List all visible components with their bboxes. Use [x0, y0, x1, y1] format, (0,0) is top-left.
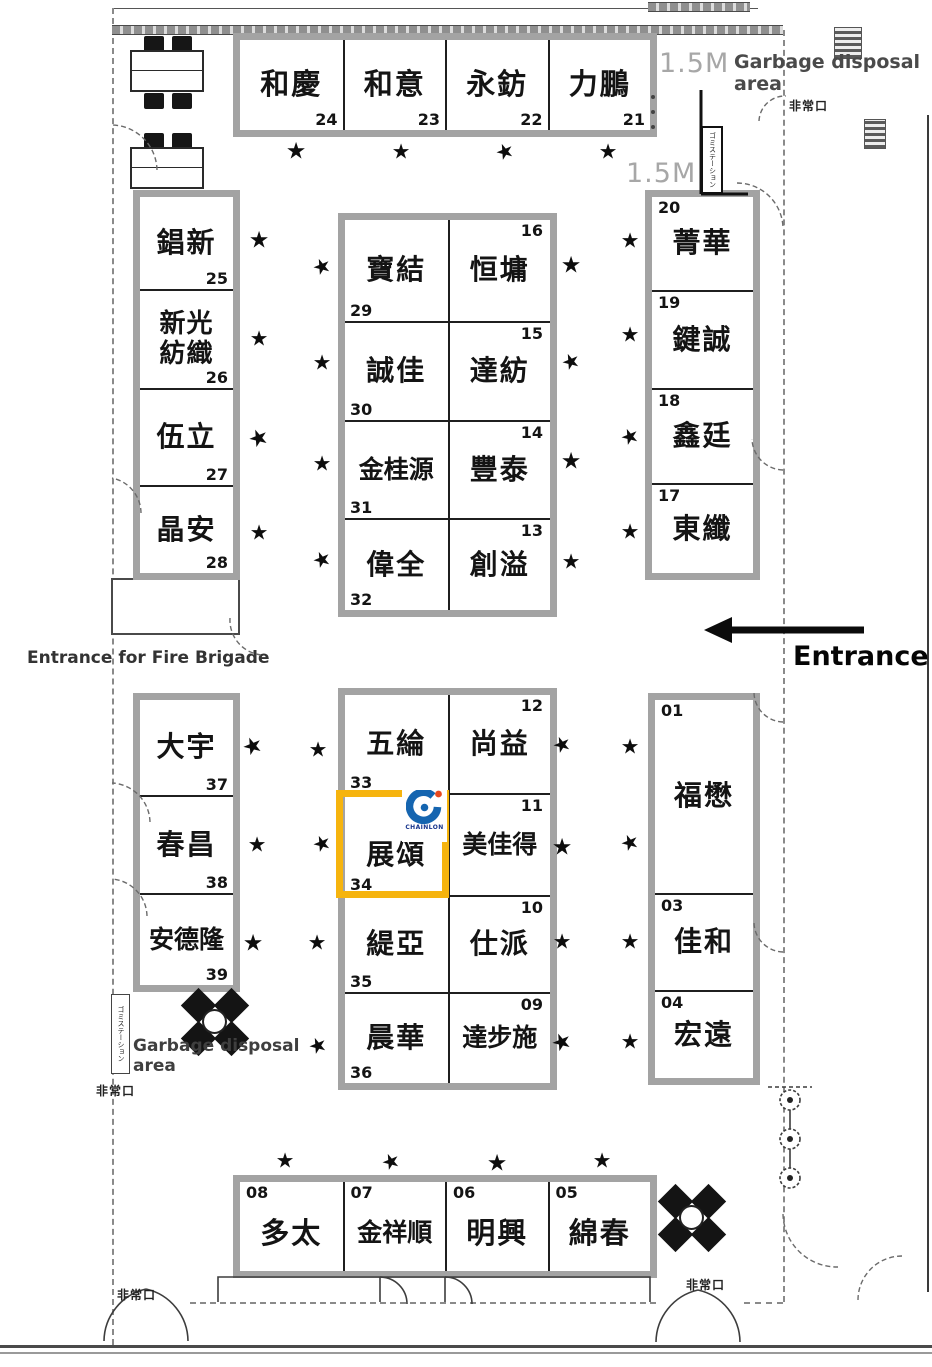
booth-name: 福懋 [674, 780, 734, 812]
bottom-wall-right [744, 1302, 783, 1304]
booth-number: 39 [206, 967, 228, 983]
top-wall-hatch-right [648, 2, 750, 12]
pillar-star-icon: ★ [250, 329, 269, 350]
booth-05: 綿春 05 [548, 1182, 651, 1271]
booth-name: 大宇 [156, 731, 216, 763]
entry-door [380, 1277, 407, 1304]
booth-number: 23 [418, 112, 440, 128]
pillar-star-icon: ★ [309, 254, 334, 281]
chainlon-logo: CHAINLON [402, 789, 447, 842]
wall-hatch-mark-2 [864, 119, 886, 149]
pillar-star-icon: ★ [313, 353, 332, 374]
bottom-wall-left [190, 1302, 656, 1304]
booth-09: 達步施 09 [448, 992, 551, 1083]
right-wall [783, 30, 785, 1302]
booth-28: 晶安 28 [140, 485, 233, 573]
booth-number: 16 [521, 223, 543, 239]
booth-block-left-lower: 大宇 37 春昌 38 安德隆 39 [133, 693, 240, 992]
garbage-top-line2: area [734, 74, 920, 96]
booth-name: 恒墉 [470, 254, 530, 286]
booth-block-left-upper: 錩新 25 新光紡織 26 伍立 27 晶安 28 [133, 190, 240, 580]
scan-edge-bottom [0, 1345, 932, 1348]
booth-18: 鑫廷 18 [652, 388, 753, 483]
booth-name: 緹亞 [366, 928, 426, 960]
pillar-star-icon: ★ [593, 1151, 612, 1172]
pillar-star-icon: ★ [308, 933, 327, 954]
booth-number: 25 [206, 271, 228, 287]
booth-31: 金桂源 31 [345, 420, 448, 518]
booth-number: 24 [315, 112, 337, 128]
booth-name: 春昌 [156, 829, 216, 861]
booth-block-bottom-row: 多太 08 金祥順 07 明興 06 綿春 05 [233, 1175, 657, 1278]
booth-number: 19 [658, 295, 680, 311]
booth-22: 永鈁 22 [445, 40, 548, 130]
booth-number: 12 [521, 698, 543, 714]
booth-12: 尚益 12 [448, 695, 551, 793]
chair-icon [144, 93, 164, 109]
pillar-star-icon: ★ [305, 1033, 330, 1060]
table-icon [130, 147, 204, 189]
booth-number: 37 [206, 777, 228, 793]
booth-name: 仕派 [470, 928, 530, 960]
booth-27: 伍立 27 [140, 388, 233, 485]
pillar-star-icon: ★ [561, 451, 582, 474]
booth-name: 金桂源 [359, 456, 434, 485]
booth-13: 創溢 13 [448, 518, 551, 610]
booth-name: 寶結 [366, 254, 426, 286]
door-arc [858, 1256, 902, 1300]
booth-number: 26 [206, 370, 228, 386]
booth-number: 08 [246, 1185, 268, 1201]
entrance-arrow-head [704, 617, 732, 643]
booth-name: 誠佳 [366, 355, 426, 387]
booth-11: 美佳得 11 [448, 793, 551, 895]
booth-30: 誠佳 30 [345, 321, 448, 420]
table-set [130, 36, 206, 110]
entry-recess-wall [218, 1277, 650, 1302]
booth-name: 伍立 [156, 421, 216, 453]
booth-21: 力鵬 21 [548, 40, 651, 130]
booth-number: 20 [658, 200, 680, 216]
plant-icon [660, 1186, 724, 1250]
booth-number: 35 [350, 974, 372, 990]
booth-number: 03 [661, 898, 683, 914]
booth-19: 鍵誠 19 [652, 290, 753, 388]
booth-35: 緹亞 35 [345, 895, 448, 992]
booth-number: 04 [661, 995, 683, 1011]
garbage-station-box-left: ゴミステーション [111, 994, 130, 1074]
booth-name: 五綸 [366, 728, 426, 760]
booth-32: 偉全 32 [345, 518, 448, 610]
pillar-star-icon: ★ [487, 1153, 508, 1176]
booth-name: 美佳得 [462, 831, 537, 860]
booth-39: 安德隆 39 [140, 893, 233, 985]
left-wall [112, 8, 114, 1345]
booth-name: 錩新 [156, 227, 216, 259]
pillar-star-icon: ★ [621, 737, 640, 758]
booth-37: 大宇 37 [140, 700, 233, 795]
booth-name: 鑫廷 [672, 420, 732, 452]
booth-name: 菁華 [672, 227, 732, 259]
scan-edge-right [927, 115, 929, 1292]
booth-name: 創溢 [470, 549, 530, 581]
booth-08: 多太 08 [240, 1182, 343, 1271]
pillar-star-icon: ★ [378, 1149, 403, 1176]
booth-name: 永鈁 [466, 68, 528, 101]
pillar-star-icon: ★ [309, 740, 328, 761]
booth-number: 18 [658, 393, 680, 409]
emergency-exit-label-bottom-right: 非常口 [686, 1276, 725, 1293]
booth-name: 鍵誠 [672, 324, 732, 356]
booth-number: 22 [520, 112, 542, 128]
booth-number: 13 [521, 523, 543, 539]
booth-block-right-upper: 菁華 20 鍵誠 19 鑫廷 18 東纖 17 [645, 190, 760, 580]
booth-name: 和意 [364, 68, 426, 101]
table-icon [130, 50, 204, 92]
booth-24: 和慶 24 [240, 40, 343, 130]
booth-block-mid-upper: 寶結 29 恒墉 16 誠佳 30 達紡 15 金桂源 31 豐泰 14 偉全 … [338, 213, 557, 617]
pillar-star-icon: ★ [245, 424, 273, 453]
booth-33: 五綸 33 [345, 695, 448, 793]
booth-name: 東纖 [672, 513, 732, 545]
booth-number: 32 [350, 592, 372, 608]
pillar-star-icon: ★ [492, 139, 517, 166]
pillar-star-icon: ★ [621, 1032, 640, 1053]
pillar-star-icon: ★ [243, 933, 264, 956]
booth-number: 05 [556, 1185, 578, 1201]
booth-26: 新光紡織 26 [140, 289, 233, 388]
booth-14: 豐泰 14 [448, 420, 551, 518]
booth-number: 31 [350, 500, 372, 516]
booth-15: 達紡 15 [448, 321, 551, 420]
booth-name: 佳和 [674, 926, 734, 958]
pillar-star-icon: ★ [250, 523, 269, 544]
pillar-star-icon: ★ [621, 325, 640, 346]
pillar-star-icon: ★ [276, 1151, 295, 1172]
booth-03: 佳和 03 [655, 893, 753, 990]
pillar-star-icon: ★ [617, 424, 642, 451]
fire-brigade-entrance-label: Entrance for Fire Brigade [27, 648, 269, 668]
booth-number: 17 [658, 488, 680, 504]
booth-number: 21 [623, 112, 645, 128]
garbage-bottom-line2: area [133, 1056, 299, 1076]
entrance-label: Entrance [793, 641, 929, 672]
booth-16: 恒墉 16 [448, 220, 551, 321]
booth-20: 菁華 20 [652, 197, 753, 290]
booth-name: 力鵬 [569, 68, 631, 101]
pillar-star-icon: ★ [599, 142, 618, 163]
garbage-bottom-line1: Garbage disposal [133, 1036, 299, 1056]
booth-36: 晨華 36 [345, 992, 448, 1083]
booth-block-top-row: 和慶 24 和意 23 永鈁 22 力鵬 21 [233, 33, 657, 137]
booth-number: 29 [350, 303, 372, 319]
booth-number: 33 [350, 775, 372, 791]
pillar-star-icon: ★ [621, 231, 640, 252]
booth-name: 晶安 [156, 514, 216, 546]
garbage-station-box-top: ゴミステーション [701, 126, 723, 194]
booth-name: 豐泰 [470, 454, 530, 486]
pillar-star-icon: ★ [621, 522, 640, 543]
booth-17: 東纖 17 [652, 483, 753, 573]
pillar-circles [768, 1087, 812, 1188]
booth-name: 宏遠 [674, 1019, 734, 1051]
booth-23: 和意 23 [343, 40, 446, 130]
booth-29: 寶結 29 [345, 220, 448, 321]
booth-01: 福懋 01 [655, 700, 753, 893]
booth-name: 晨華 [366, 1022, 426, 1054]
empty-room [111, 578, 240, 635]
chair-icon [172, 93, 192, 109]
garbage-top-line1: Garbage disposal [734, 52, 920, 74]
booth-25: 錩新 25 [140, 197, 233, 289]
pillar-star-icon: ★ [248, 835, 267, 856]
entry-door [445, 1277, 472, 1304]
pillar-star-icon: ★ [286, 141, 307, 164]
pillar-star-icon: ★ [309, 547, 334, 574]
booth-name: 和慶 [260, 68, 322, 101]
booth-number: 09 [521, 997, 543, 1013]
booth-name: 偉全 [366, 549, 426, 581]
booth-number: 27 [206, 467, 228, 483]
booth-number: 36 [350, 1065, 372, 1081]
booth-name: 達紡 [470, 355, 530, 387]
booth-block-right-lower: 福懋 01 佳和 03 宏遠 04 [648, 693, 760, 1085]
pillar-star-icon: ★ [239, 732, 267, 761]
double-door-right [656, 1290, 740, 1342]
booth-06: 明興 06 [445, 1182, 548, 1271]
pillar-star-icon: ★ [313, 454, 332, 475]
booth-number: 11 [521, 798, 543, 814]
pillar-star-icon: ★ [309, 831, 334, 858]
garbage-area-top-label: Garbage disposal area [734, 52, 920, 96]
booth-number: 15 [521, 326, 543, 342]
booth-name: 尚益 [470, 728, 530, 760]
booth-number: 10 [521, 900, 543, 916]
emergency-exit-label-bottom-left: 非常口 [117, 1286, 156, 1303]
booth-04: 宏遠 04 [655, 990, 753, 1078]
booth-name: 達步施 [462, 1024, 537, 1053]
booth-38: 春昌 38 [140, 795, 233, 893]
pillar-star-icon: ★ [621, 932, 640, 953]
emergency-exit-label-top-right: 非常口 [789, 97, 828, 114]
garbage-area-bottom-label: Garbage disposal area [133, 1036, 299, 1077]
booth-number: 28 [206, 555, 228, 571]
pillar-star-icon: ★ [249, 230, 270, 253]
booth-07: 金祥順 07 [343, 1182, 446, 1271]
clearance-label-mid: 1.5M [626, 158, 696, 189]
booth-name: 金祥順 [357, 1219, 432, 1248]
pillar-star-icon: ★ [562, 552, 581, 573]
chainlon-logo-text: CHAINLON [405, 824, 443, 831]
booth-name: 新光紡織 [156, 310, 218, 370]
booth-name: 明興 [466, 1217, 528, 1250]
booth-name: 綿春 [569, 1217, 631, 1250]
floor-plan: 和慶 24 和意 23 永鈁 22 力鵬 21 錩新 25 新光紡織 26 伍立… [0, 0, 932, 1367]
chainlon-logo-icon [406, 790, 444, 826]
scan-edge-bottom2 [0, 1352, 932, 1354]
booth-10: 仕派 10 [448, 895, 551, 992]
pillar-star-icon: ★ [392, 142, 411, 163]
pillar-star-icon: ★ [561, 255, 582, 278]
booth-name: 多太 [260, 1217, 322, 1250]
pillar-star-icon: ★ [617, 830, 642, 857]
booth-number: 01 [661, 703, 683, 719]
booth-number: 30 [350, 402, 372, 418]
pillar-star-icon: ★ [558, 349, 583, 376]
booth-number: 06 [453, 1185, 475, 1201]
booth-number: 14 [521, 425, 543, 441]
booth-name: 安德隆 [149, 926, 224, 955]
booth-number: 38 [206, 875, 228, 891]
door-arc [783, 1214, 838, 1267]
door-arc [759, 96, 786, 121]
booth-number: 07 [351, 1185, 373, 1201]
bottom-entry [104, 1277, 740, 1342]
emergency-exit-label-garbage: 非常口 [96, 1082, 135, 1099]
clearance-label-top: 1.5M [659, 48, 729, 79]
